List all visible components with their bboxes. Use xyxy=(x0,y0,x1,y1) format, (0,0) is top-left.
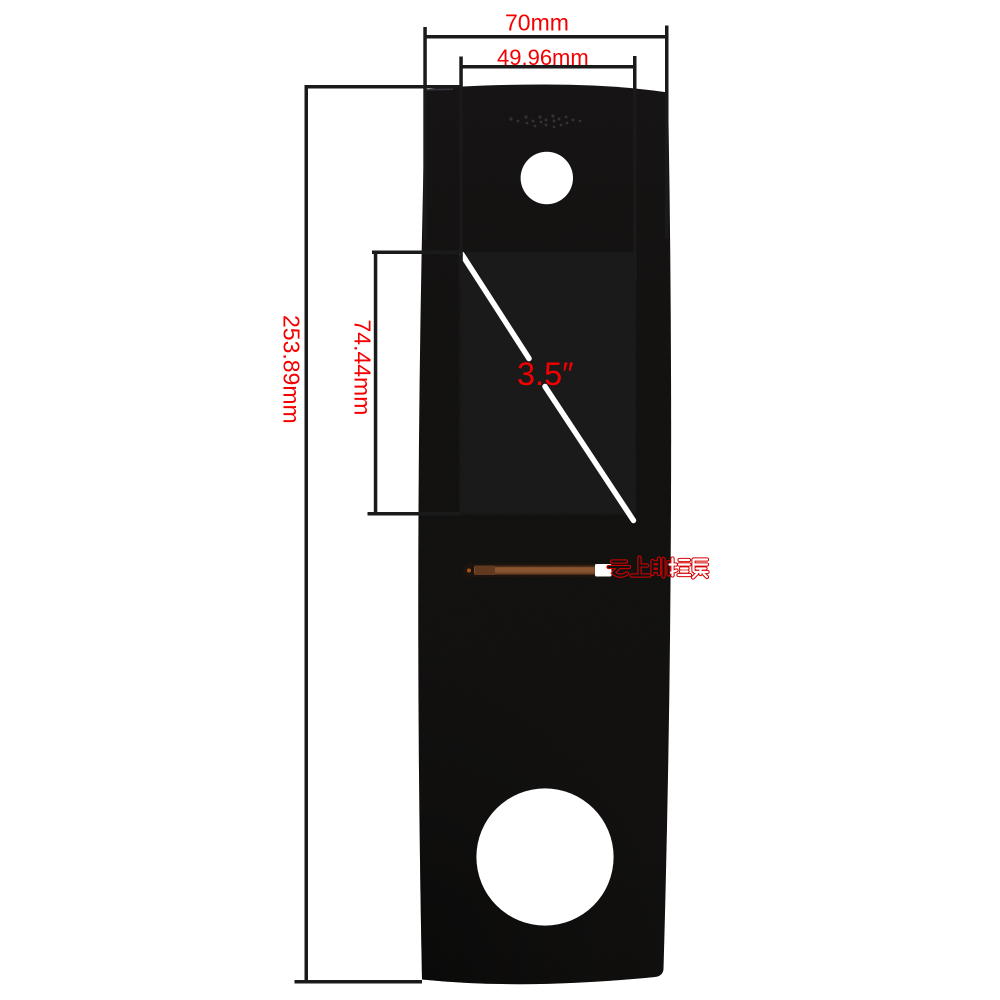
svg-text:70mm: 70mm xyxy=(505,10,569,36)
svg-text:253.89mm: 253.89mm xyxy=(279,315,305,424)
svg-text:3.5″: 3.5″ xyxy=(517,356,574,392)
svg-text:74.44mm: 74.44mm xyxy=(350,320,376,416)
svg-text:49.96mm: 49.96mm xyxy=(497,45,589,70)
